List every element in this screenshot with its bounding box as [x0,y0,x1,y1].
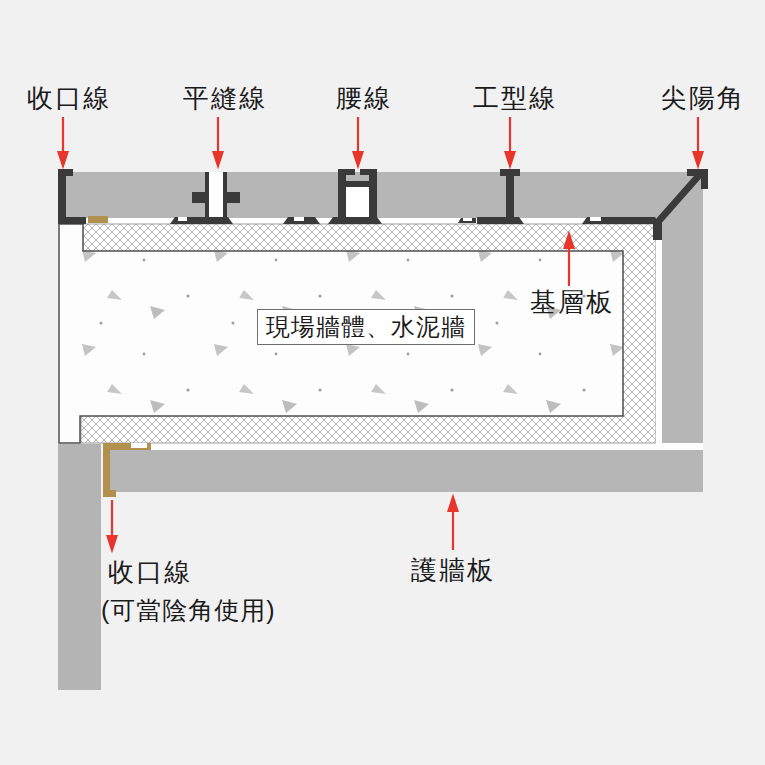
arrow-down-icon [506,117,515,166]
arrow-down-icon [354,117,363,166]
label-bottom-trim-line: 收口線 [108,558,192,587]
label-bottom-trim-note: (可當陰角使用) [101,597,276,625]
label-flat-seam-line: 平縫線 [183,84,267,113]
mounting-clip-right [582,217,660,224]
label-site-concrete-wall: 現場牆體、水泥牆 [257,309,475,345]
wall-panel-profile-diagram: 收口線 平縫線 腰線 工型線 尖陽角 基層板 現場牆體、水泥牆 收口線 (可當陰… [0,0,765,765]
label-wall-panel: 護牆板 [411,556,495,585]
label-top-trim-line: 收口線 [27,84,111,113]
panel-top-band [60,172,703,220]
gold-clip-top-left [88,216,108,223]
arrow-down-icon [108,500,117,550]
mounting-clip-left [283,217,320,224]
label-i-type-line: 工型線 [473,84,557,113]
arrow-down-icon [59,117,68,166]
label-waist-line: 腰線 [336,84,392,113]
seam-above-bottom-band [101,443,703,450]
seam-right-of-hatch [656,224,662,450]
label-sharp-corner: 尖陽角 [661,84,745,113]
existing-left-wall [58,444,101,690]
diagram-canvas [0,0,765,765]
panel-bottom-band [110,450,703,492]
arrow-up-icon [449,497,458,550]
arrow-down-icon [694,117,703,166]
arrow-down-icon [214,117,223,166]
label-base-layer-board: 基層板 [530,288,614,317]
